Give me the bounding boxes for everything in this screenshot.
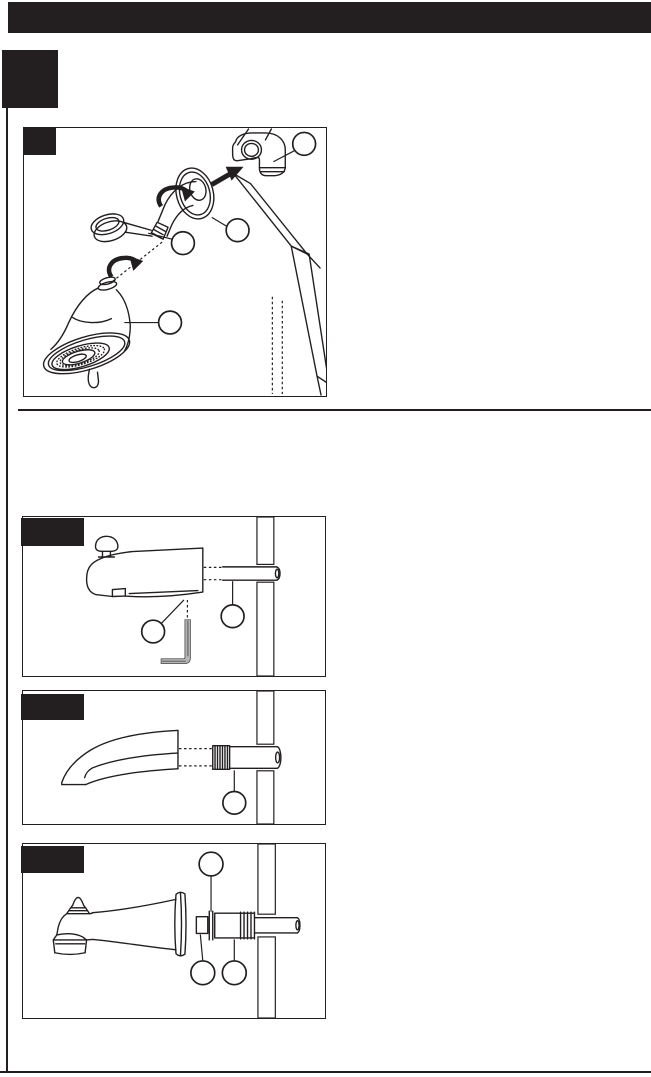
- copper-pipe: [254, 918, 299, 933]
- figure-tub-spout-set-screw: [22, 516, 326, 677]
- left-page-rule: [6, 108, 8, 1073]
- wall-section: [257, 517, 274, 676]
- figure-tub-spout-threaded: [22, 690, 326, 825]
- tub-spout: [62, 730, 178, 784]
- shower-head: [39, 276, 134, 388]
- figure-tub-spout-slip-fit: [22, 843, 326, 1019]
- callout-circle: [191, 961, 215, 985]
- manual-page: [0, 0, 651, 1077]
- figure-label-box: [23, 127, 56, 155]
- shower-head-install-drawing: [24, 128, 326, 396]
- tub-spout-diverter: [87, 536, 203, 596]
- callouts: [223, 770, 246, 814]
- callout-circle: [199, 852, 223, 876]
- o-rings: [241, 912, 255, 939]
- slip-fit-adapter: [196, 911, 254, 940]
- threaded-pipe-nipple: [213, 746, 281, 770]
- bottom-page-rule: [0, 1071, 651, 1073]
- callout-circle: [142, 620, 165, 643]
- allen-wrench: [161, 620, 190, 664]
- wall-stud-brace: [234, 129, 326, 395]
- retainer-ring: [209, 911, 212, 940]
- tub-spout-slip-fit: [53, 892, 186, 956]
- alignment-dashed-lines: [179, 749, 212, 766]
- callouts: [191, 852, 246, 984]
- figure-shower-head-install: [23, 127, 327, 397]
- figure-label-box: [21, 846, 84, 873]
- figure-label-box: [21, 518, 84, 546]
- wall-section: [257, 691, 274, 824]
- figure-label-box: [21, 694, 84, 720]
- section-divider-line: [18, 409, 651, 411]
- callout-circle: [223, 791, 246, 814]
- top-banner-bar: [8, 2, 651, 33]
- callout-circle: [226, 219, 249, 242]
- insert-arrow: [212, 167, 244, 185]
- callout-circle: [222, 961, 246, 985]
- alignment-dashed-lines: [204, 567, 222, 579]
- step-number-box: [2, 50, 58, 108]
- supply-pipe: [223, 567, 280, 580]
- callout-circle: [159, 311, 182, 334]
- wall-section: [258, 844, 275, 1018]
- callout-circle: [172, 232, 195, 255]
- set-screw-nut: [196, 917, 207, 934]
- callout-circle: [293, 132, 316, 155]
- rotate-arrow-lower: [109, 256, 143, 277]
- callout-circle: [221, 605, 244, 628]
